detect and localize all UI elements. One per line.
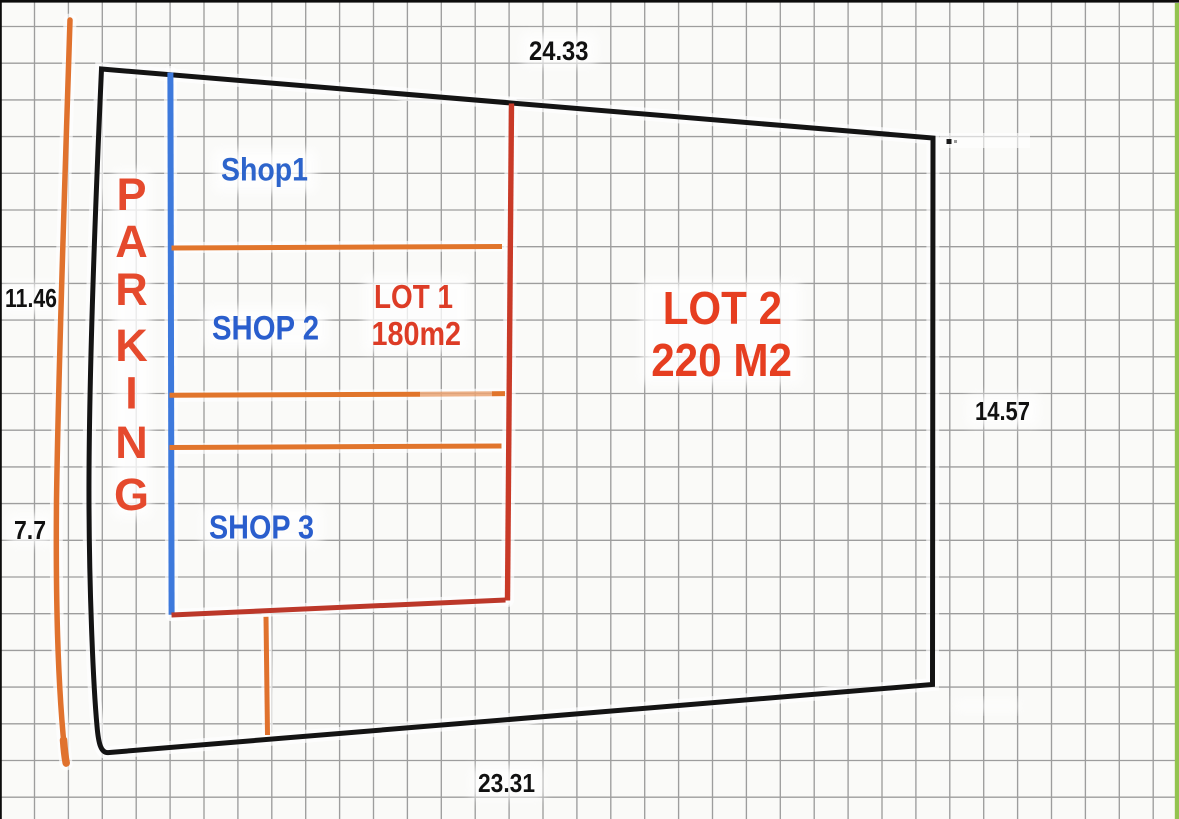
svg-text:G: G xyxy=(114,469,149,520)
svg-text:SHOP 2: SHOP 2 xyxy=(212,310,319,348)
svg-text:7.7: 7.7 xyxy=(14,515,46,545)
svg-text:R: R xyxy=(115,264,148,315)
svg-text:LOT 2: LOT 2 xyxy=(663,282,782,334)
svg-text:P: P xyxy=(116,169,146,220)
svg-text:14.57: 14.57 xyxy=(975,396,1030,426)
svg-text:SHOP 3: SHOP 3 xyxy=(209,508,314,545)
svg-text:I: I xyxy=(125,368,138,419)
svg-text:LOT 1: LOT 1 xyxy=(374,278,453,315)
svg-text:220 M2: 220 M2 xyxy=(651,334,792,386)
svg-text:11.46: 11.46 xyxy=(5,283,57,313)
svg-text:Shop1: Shop1 xyxy=(221,152,308,188)
svg-text:180m2: 180m2 xyxy=(372,315,462,352)
svg-text:A: A xyxy=(115,216,148,267)
svg-text:K: K xyxy=(115,320,148,371)
svg-text:N: N xyxy=(115,417,148,468)
svg-text:23.31: 23.31 xyxy=(478,768,535,798)
svg-text:24.33: 24.33 xyxy=(529,36,589,66)
